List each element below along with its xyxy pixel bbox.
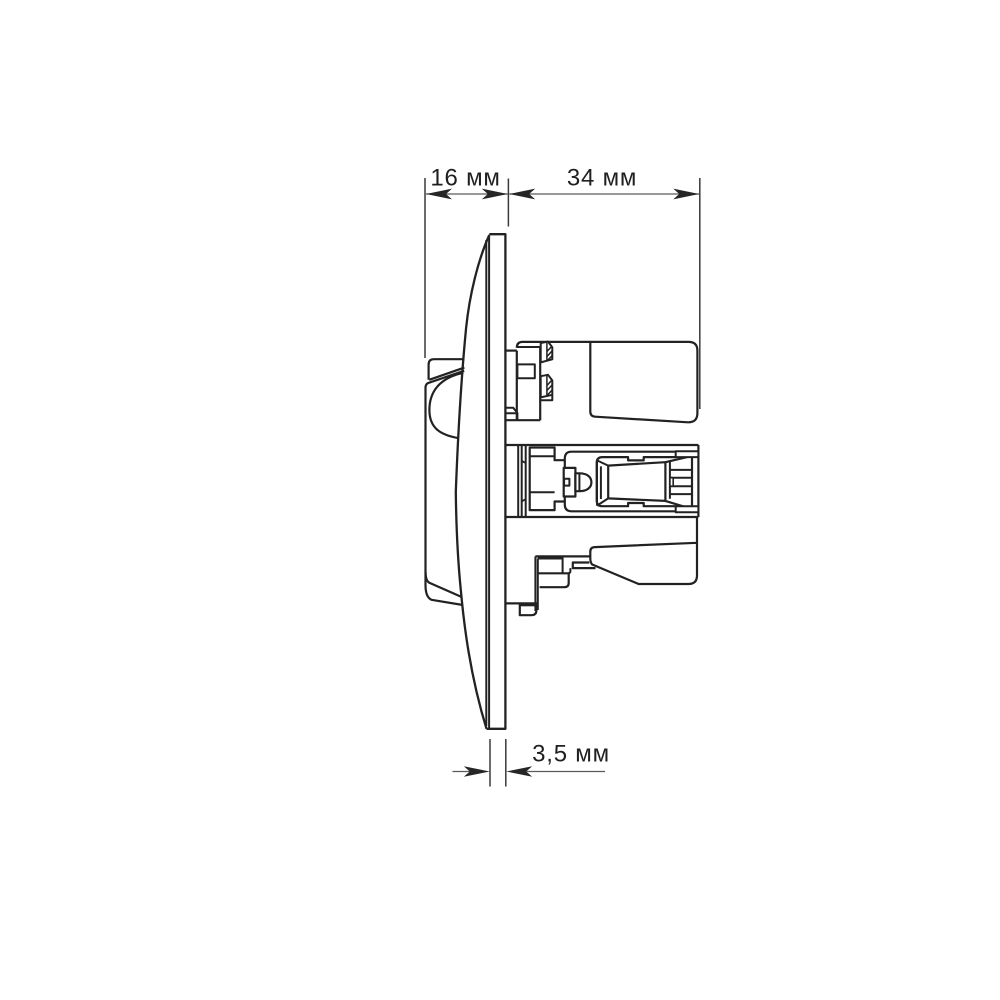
svg-text:34 мм: 34 мм (567, 165, 637, 192)
svg-text:3,5 мм: 3,5 мм (532, 740, 610, 767)
svg-text:16 мм: 16 мм (430, 165, 500, 192)
